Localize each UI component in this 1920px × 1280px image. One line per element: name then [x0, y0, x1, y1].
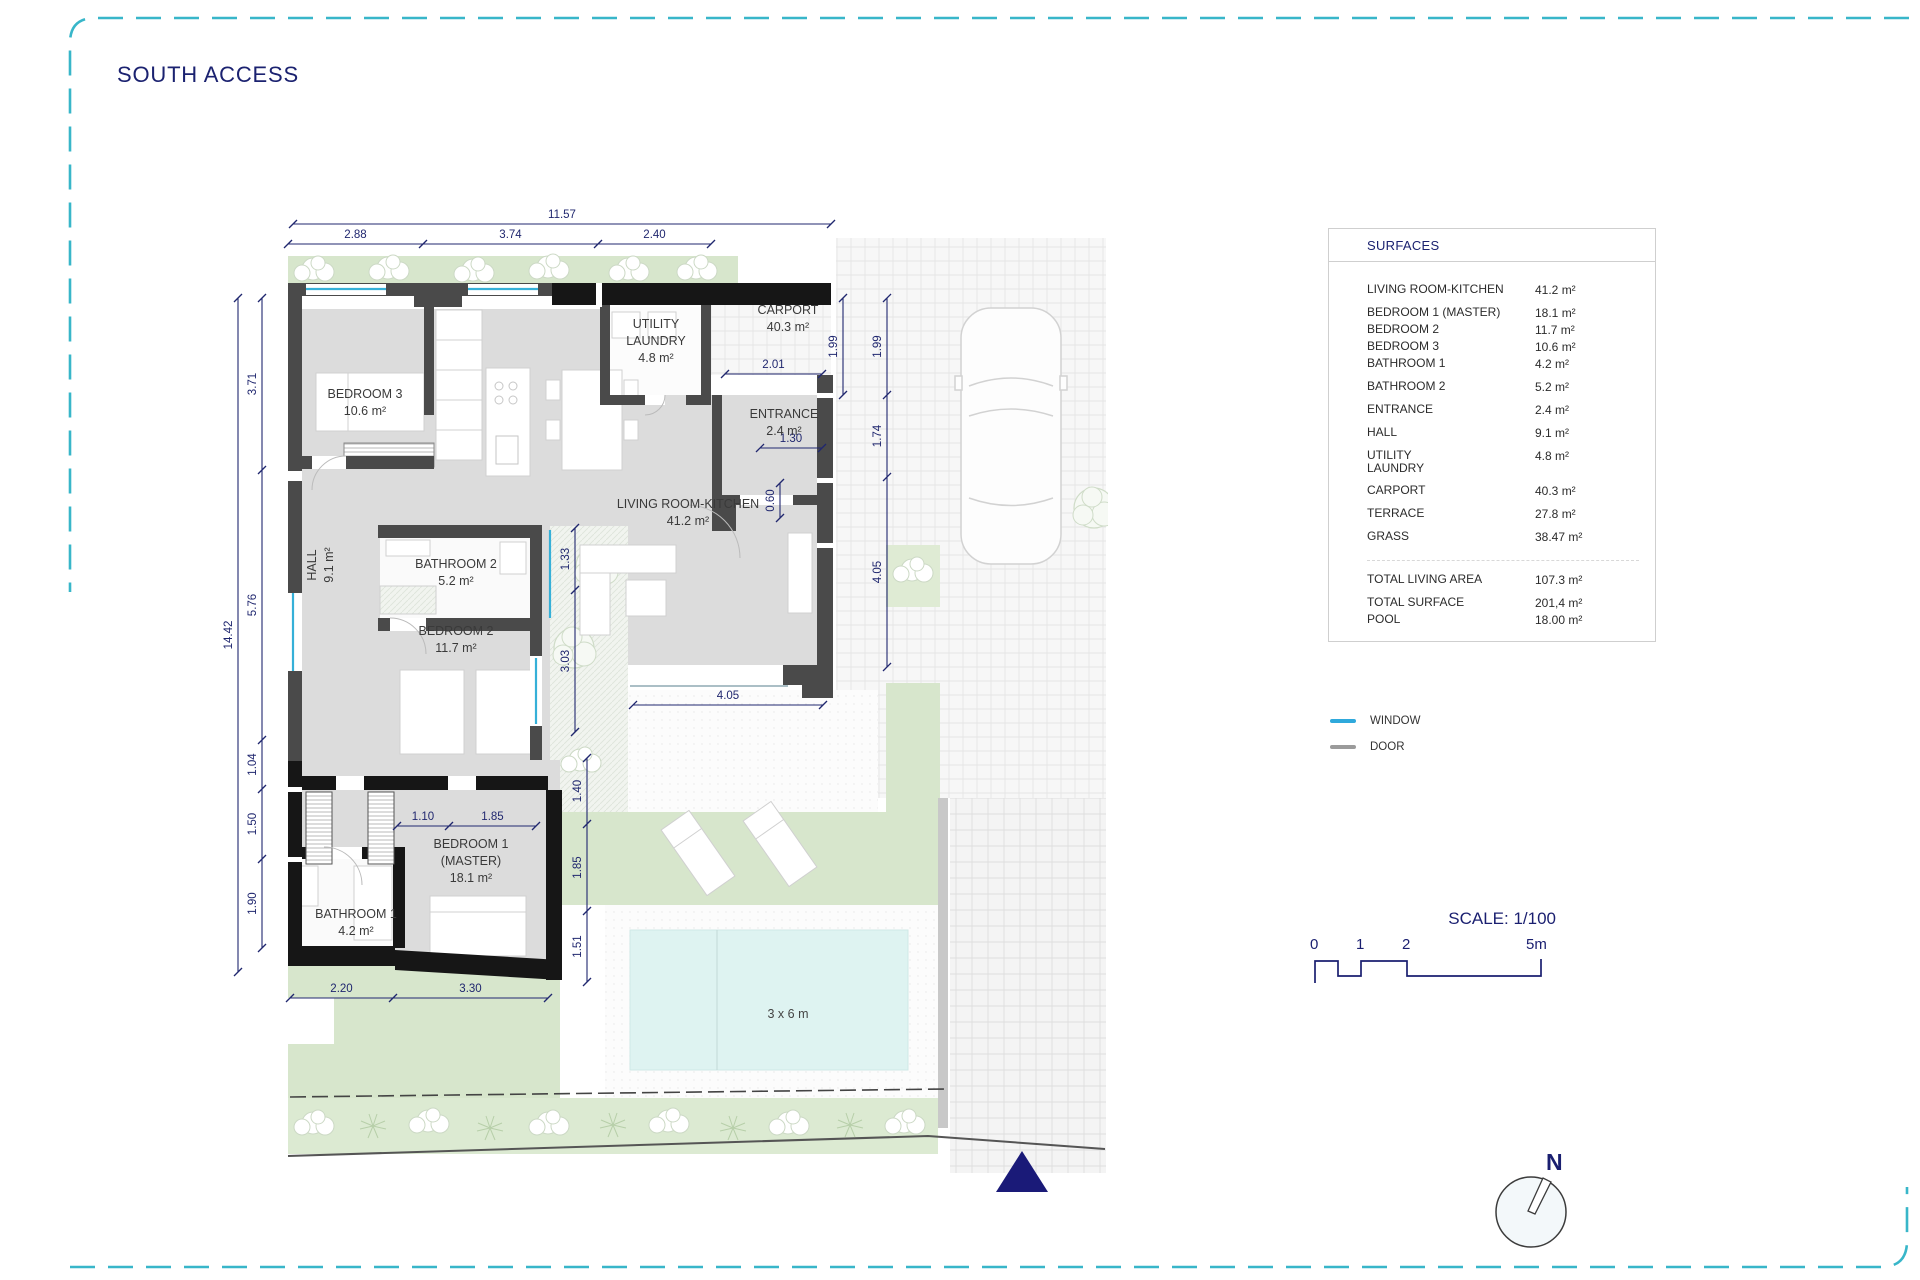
surface-row-0: LIVING ROOM-KITCHEN41.2 m² — [1367, 283, 1639, 297]
north-planting-strip — [288, 256, 738, 283]
legend-door-label: DOOR — [1370, 741, 1405, 753]
dimension-chain-c1: 11.57 — [289, 209, 835, 228]
terrace — [628, 690, 878, 812]
dim-label-v4-0: 1.99 — [872, 335, 884, 357]
south-access-marker — [985, 1146, 1059, 1198]
surface-label: POOL — [1367, 613, 1535, 626]
surface-value: 40.3 m² — [1535, 484, 1635, 498]
surface-value: 38.47 m² — [1535, 530, 1635, 544]
surfaces-table: SURFACES LIVING ROOM-KITCHEN41.2 m²BEDRO… — [1328, 228, 1656, 642]
surface-value: 2.4 m² — [1535, 403, 1635, 417]
triangle-icon — [996, 1151, 1048, 1192]
north-compass: N — [1482, 1142, 1602, 1260]
surface-label: BEDROOM 3 — [1367, 340, 1535, 353]
dim-label-v7-2: 1.51 — [572, 935, 584, 957]
surface-label: TOTAL LIVING AREA — [1367, 573, 1535, 586]
surface-row-13: TOTAL SURFACE201,4 m² — [1367, 596, 1639, 610]
dim-label-c6-1: 1.85 — [481, 811, 503, 823]
surface-row-11: GRASS38.47 m² — [1367, 530, 1639, 544]
surface-value: 5.2 m² — [1535, 380, 1635, 394]
surface-value: 9.1 m² — [1535, 426, 1635, 440]
dim-label-c7-1: 3.30 — [459, 983, 481, 995]
dim-label-c3-0: 2.01 — [762, 359, 784, 371]
car-outline — [955, 308, 1067, 564]
dim-label-v2-1: 5.76 — [247, 594, 259, 616]
surface-row-5: BATHROOM 25.2 m² — [1367, 380, 1639, 394]
dim-label-c2-2: 2.40 — [643, 229, 665, 241]
dim-label-v4-2: 4.05 — [872, 561, 884, 583]
dim-label-v6-1: 3.03 — [560, 650, 572, 672]
surfaces-table-header: SURFACES — [1329, 229, 1655, 262]
surface-value: 107.3 m² — [1535, 573, 1635, 587]
surface-value: 201,4 m² — [1535, 596, 1635, 610]
surface-row-3: BEDROOM 310.6 m² — [1367, 340, 1639, 354]
surface-row-7: HALL9.1 m² — [1367, 426, 1639, 440]
surface-label: HALL — [1367, 426, 1535, 439]
dim-label-v6-0: 1.33 — [560, 548, 572, 570]
scale-bar-block: SCALE: 1/100 0 1 2 5m — [1300, 903, 1580, 988]
dim-label-v5-0: 0.60 — [765, 489, 777, 511]
dim-label-c7-0: 2.20 — [330, 983, 352, 995]
grass-east-strip — [886, 683, 940, 907]
scale-tick-1: 1 — [1356, 936, 1364, 953]
floor-plan-sheet: { "title": "SOUTH ACCESS", "surfaces": {… — [0, 0, 1920, 1280]
surface-row-4: BATHROOM 14.2 m² — [1367, 357, 1639, 371]
legend: WINDOW DOOR — [1330, 708, 1420, 760]
dim-label-v7-1: 1.85 — [572, 856, 584, 878]
surface-label: ENTRANCE — [1367, 403, 1535, 416]
dim-label-v2-3: 1.50 — [247, 813, 259, 835]
surface-row-9: CARPORT40.3 m² — [1367, 484, 1639, 498]
dim-label-v1-0: 14.42 — [223, 621, 235, 650]
scale-tick-5m: 5m — [1526, 936, 1547, 953]
surface-row-14: POOL18.00 m² — [1367, 613, 1639, 627]
surface-value: 18.1 m² — [1535, 306, 1635, 320]
dim-label-v4-1: 1.74 — [872, 424, 884, 447]
surface-label: UTILITY LAUNDRY — [1367, 449, 1535, 475]
room-label-pool: 3 x 6 m — [768, 1007, 809, 1021]
legend-window-row: WINDOW — [1330, 708, 1420, 734]
surface-label: BEDROOM 2 — [1367, 323, 1535, 336]
southeast-pavers — [950, 798, 1106, 1173]
surfaces-table-rows: LIVING ROOM-KITCHEN41.2 m²BEDROOM 1 (MAS… — [1329, 262, 1655, 641]
surface-label: BATHROOM 1 — [1367, 357, 1535, 370]
surface-row-2: BEDROOM 211.7 m² — [1367, 323, 1639, 337]
surface-value: 4.2 m² — [1535, 357, 1635, 371]
dim-label-c6-0: 1.10 — [412, 811, 434, 823]
scale-bar-icon — [1300, 955, 1570, 987]
compass-north-label: N — [1546, 1149, 1563, 1175]
surface-value: 11.7 m² — [1535, 323, 1635, 337]
surface-value: 41.2 m² — [1535, 283, 1635, 297]
dim-label-v7-0: 1.40 — [572, 780, 584, 802]
surface-label: BEDROOM 1 (MASTER) — [1367, 306, 1535, 319]
dim-label-v2-0: 3.71 — [247, 373, 259, 395]
surface-value: 27.8 m² — [1535, 507, 1635, 521]
surface-row-12: TOTAL LIVING AREA107.3 m² — [1367, 560, 1639, 587]
dimension-chain-v2: 3.715.761.041.501.90 — [247, 294, 266, 952]
dim-label-c2-0: 2.88 — [344, 229, 366, 241]
surface-row-1: BEDROOM 1 (MASTER)18.1 m² — [1367, 306, 1639, 320]
door-line-icon — [1330, 745, 1356, 749]
surface-label: CARPORT — [1367, 484, 1535, 497]
paved-corner — [288, 998, 334, 1044]
dim-label-c5-0: 4.05 — [717, 690, 739, 702]
dim-label-v2-2: 1.04 — [247, 753, 259, 776]
floor-plan-drawing: 11.572.883.742.402.011.304.051.101.852.2… — [208, 183, 1108, 1173]
legend-door-row: DOOR — [1330, 734, 1420, 760]
dimension-chain-c2: 2.883.742.40 — [284, 229, 715, 248]
scale-tick-0: 0 — [1310, 936, 1318, 953]
dim-label-v3-0: 1.99 — [828, 335, 840, 357]
surface-value: 10.6 m² — [1535, 340, 1635, 354]
surface-label: GRASS — [1367, 530, 1535, 543]
pool — [630, 930, 908, 1070]
surface-label: TOTAL SURFACE — [1367, 596, 1535, 609]
surface-label: TERRACE — [1367, 507, 1535, 520]
surface-row-6: ENTRANCE2.4 m² — [1367, 403, 1639, 417]
legend-window-label: WINDOW — [1370, 715, 1420, 727]
scale-title: SCALE: 1/100 — [1300, 909, 1556, 929]
surface-label: BATHROOM 2 — [1367, 380, 1535, 393]
surface-row-10: TERRACE27.8 m² — [1367, 507, 1639, 521]
dimension-chain-v1: 14.42 — [223, 294, 242, 976]
surface-label: LIVING ROOM-KITCHEN — [1367, 283, 1535, 296]
grass-lounger-area — [540, 812, 938, 905]
scale-tick-2: 2 — [1402, 936, 1410, 953]
dim-label-v2-4: 1.90 — [247, 892, 259, 914]
surface-value: 18.00 m² — [1535, 613, 1635, 627]
dim-label-c1-0: 11.57 — [548, 209, 576, 221]
dim-label-c2-1: 3.74 — [499, 229, 522, 241]
surface-row-8: UTILITY LAUNDRY4.8 m² — [1367, 449, 1639, 475]
surface-value: 4.8 m² — [1535, 449, 1635, 463]
window-line-icon — [1330, 719, 1356, 723]
page-title: SOUTH ACCESS — [117, 62, 299, 88]
plot-boundary-wall — [938, 798, 948, 1128]
